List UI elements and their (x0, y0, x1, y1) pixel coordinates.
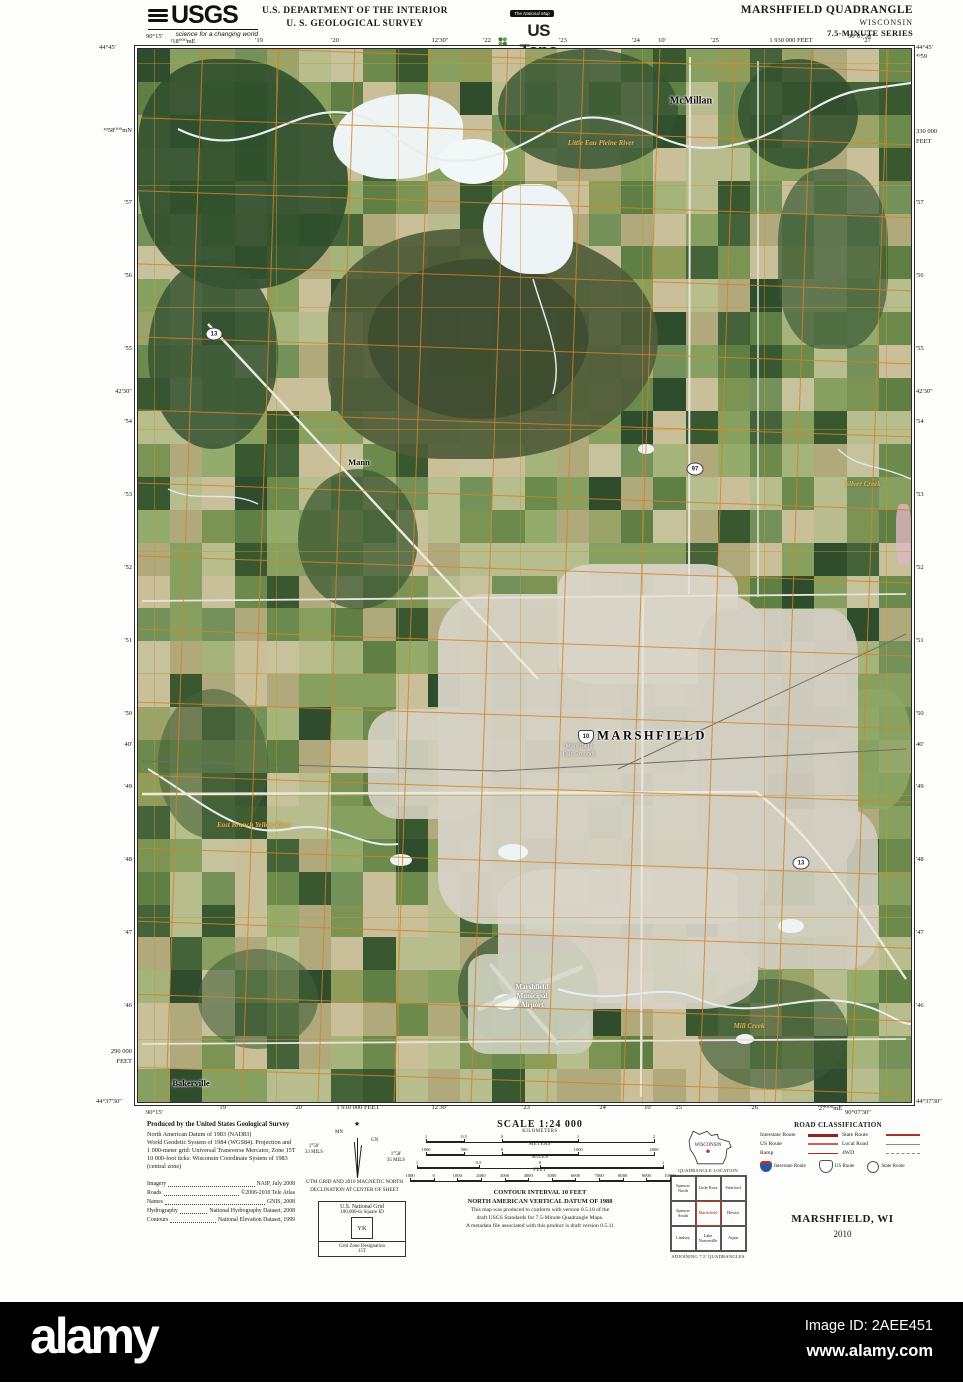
scale-bar-number: 7000 (595, 1173, 604, 1178)
roadclass-label: US Route (760, 1141, 804, 1147)
grid-tick-bottom: 10' (644, 1104, 652, 1111)
contour-line: CONTOUR INTERVAL 10 FEET (390, 1189, 690, 1198)
sheet-year: 2010 (770, 1229, 915, 1239)
adjoining-quads-grid: Spencer NorthLittle RoseStratfordSpencer… (670, 1175, 747, 1252)
interstate-shield-icon (760, 1161, 772, 1172)
source-row: HydrographyNational Hydrography Dataset,… (147, 1207, 295, 1216)
grid-tick-top: '24 (632, 37, 640, 44)
source-key: Hydrography (147, 1207, 178, 1216)
corner-tl-lon: 90°15' (146, 33, 163, 40)
roadclass-label: Local Road (842, 1141, 882, 1147)
scale-bar-number: 500 (461, 1147, 468, 1152)
adjoining-quad-cell: Hewitt (721, 1201, 746, 1226)
ustopo-leaf-icon (497, 35, 508, 48)
datum-line: 1 000-meter grid: Universal Transverse M… (147, 1147, 305, 1155)
map-label-water: East Branch Yellow River (217, 821, 291, 829)
grid-tick-left: 42'30″ (86, 388, 132, 395)
scale-bar-number: 0 (501, 1147, 503, 1152)
roadclass-line-local (886, 1144, 920, 1145)
sheet-name-block: MARSHFIELD, WI 2010 (770, 1213, 915, 1239)
true-north-star-icon: ★ (354, 1120, 360, 1129)
map-label-white-sm: Fair Grounds (563, 751, 596, 758)
grid-tick-right: 42'30″ (916, 388, 963, 395)
corner-bl-lon: 90°15' (146, 1109, 163, 1116)
corner-br-lat: 44°37'30″ (916, 1098, 942, 1105)
scale-bar-number: 1000 (573, 1147, 582, 1152)
leader-dots (180, 1207, 207, 1214)
scale-bar-tick (481, 1178, 482, 1182)
watermark-bar: alamy Image ID: 2AEE451 www.alamy.com (0, 1302, 963, 1382)
leader-dots (164, 1189, 239, 1196)
scale-bar-number: 8000 (618, 1173, 627, 1178)
roadclass-label: 4WD (842, 1150, 882, 1156)
roadclass-label: Interstate Route (760, 1132, 804, 1138)
grid-tick-left: '49 (86, 783, 132, 790)
grid-tick-left: 290 000 (86, 1048, 132, 1055)
road-shield-legend: Interstate RouteUS RouteState Route (760, 1160, 916, 1173)
standards-line: draft USGS Standards for 7.5-Minute Quad… (380, 1215, 700, 1223)
declination-diagram: ★ MN 1°50'33 MILS GN 1°58'35 MILS (295, 1124, 419, 1180)
scale-bar-number: 0 (539, 1160, 541, 1165)
scale-bar: FEET100001000200030004000500060007000800… (410, 1173, 670, 1185)
grid-tick-right: '48 (916, 856, 963, 863)
scale-bar-number: 2000 (476, 1173, 485, 1178)
grid-tick-left: 40' (86, 741, 132, 748)
usgs-waves-icon (148, 9, 168, 22)
grid-tick-left: '46 (86, 1002, 132, 1009)
scale-bar-tick (434, 1178, 435, 1182)
grid-tick-left: '55 (86, 345, 132, 352)
adjoining-quad-cell: Lake Nasonville (696, 1226, 721, 1251)
shield-legend-item: State Route (867, 1161, 904, 1173)
grid-tick-right: ⁴⁹59 (916, 53, 963, 60)
road-classification-legend: ROAD CLASSIFICATION Interstate RouteStat… (760, 1121, 916, 1173)
map-label-town-sm: Bakerville (172, 1078, 209, 1088)
roadclass-label: State Route (842, 1132, 882, 1138)
shield-legend-label: Interstate Route (774, 1164, 806, 1169)
adjoining-quad-cell: Little Rose (696, 1176, 721, 1201)
leader-dots (165, 1198, 265, 1205)
grid-tick-top: 12'30″ (432, 37, 449, 44)
roadclass-label: Ramp (760, 1150, 804, 1156)
scale-bar-tick (654, 1139, 655, 1143)
grid-tick-top: '23 (559, 37, 567, 44)
quad-state: WISCONSIN (741, 18, 913, 28)
gn-values: 1°58'35 MILS (379, 1152, 413, 1165)
map-label-white: Airport (521, 1001, 544, 1009)
adjoining-quad-cell: Lindsey (671, 1226, 696, 1251)
grid-tick-left: FEET (86, 1058, 132, 1065)
scale-bar-tick (575, 1178, 576, 1182)
map-label-water: Mill Creek (734, 1022, 765, 1030)
standards-line: This map was produced to conform with ve… (380, 1207, 700, 1215)
source-row: ContoursNational Elevation Dataset, 1999 (147, 1216, 295, 1225)
alamy-logo: alamy (30, 1311, 157, 1361)
datum-line: (central zone) (147, 1163, 305, 1171)
grid-tick-top: '25 (711, 37, 719, 44)
shield-legend-label: State Route (881, 1164, 904, 1169)
map-label-town: McMillan (670, 96, 712, 107)
datum-line: World Geodetic System of 1984 (WGS84). P… (147, 1139, 305, 1147)
usng-square-id: YK (351, 1217, 373, 1239)
scale-bar-number: 1000 (421, 1147, 430, 1152)
mn-values: 1°50'33 MILS (297, 1144, 331, 1157)
map-label-city: MARSHFIELD (597, 729, 707, 744)
shield-legend-label: US Route (835, 1164, 855, 1169)
adjoining-quad-cell: Spencer South (671, 1201, 696, 1226)
quad-title: MARSHFIELD QUADRANGLE (741, 3, 913, 18)
scale-bar-number: 0 (501, 1134, 503, 1139)
scale-bar-number: 2000 (649, 1147, 658, 1152)
grid-tick-bottom: '27⁰⁰⁰mE (818, 1104, 843, 1112)
quadrangle-location-block: WISCONSIN QUADRANGLE LOCATION Spencer No… (668, 1126, 748, 1259)
scale-bar-segment (646, 1180, 670, 1182)
map-label-town-sm: Mann (348, 457, 370, 467)
scale-bar-number: 2 (653, 1134, 655, 1139)
adjoining-quad-cell: Marshfield (696, 1201, 721, 1226)
grid-tick-bottom: '25 (674, 1104, 682, 1111)
grid-tick-left: '47 (86, 929, 132, 936)
grid-tick-left: '54 (86, 418, 132, 425)
map-label-white: Marshfield (515, 983, 548, 991)
wisconsin-label: WISCONSIN (695, 1143, 722, 1148)
scale-bar-segment (552, 1180, 576, 1182)
grid-tick-bottom: 1 910 000 FEET (336, 1104, 379, 1111)
adjoining-quad-cell: Spencer North (671, 1176, 696, 1201)
grid-tick-right: '46 (916, 1002, 963, 1009)
grid-tick-left: '51 (86, 637, 132, 644)
usng-gzd-value: 15T (319, 1249, 405, 1254)
grid-tick-right: '49 (916, 783, 963, 790)
grid-tick-top: ¹18⁰⁰⁰mE (170, 37, 195, 45)
usgs-topo-sheet: USGS science for a changing world U.S. D… (0, 0, 963, 1390)
roadclass-line-state (886, 1134, 920, 1136)
grid-tick-right: '56 (916, 272, 963, 279)
grid-tick-left: '57 (86, 199, 132, 206)
datum-lines: North American Datum of 1983 (NAD83)Worl… (147, 1131, 305, 1171)
department-heading: U.S. DEPARTMENT OF THE INTERIOR U. S. GE… (225, 5, 485, 31)
map-label-water: Little Eau Pleine River (568, 139, 634, 147)
datum-line: North American Datum of 1983 (NAD83) (147, 1131, 305, 1139)
grid-tick-bottom: 12'30″ (432, 1104, 449, 1111)
source-key: Roads (147, 1189, 162, 1198)
scale-bar-number: 5000 (547, 1173, 556, 1178)
scale-bar-unit: KILOMETERS (426, 1129, 654, 1134)
grid-tick-left: '56 (86, 272, 132, 279)
leader-dots (170, 1216, 216, 1223)
scale-bar-number: 1 (416, 1160, 418, 1165)
grid-tick-right: '53 (916, 491, 963, 498)
grid-tick-bottom: '23 (522, 1104, 530, 1111)
grid-tick-bottom: '24 (598, 1104, 606, 1111)
source-value: National Elevation Dataset, 1999 (218, 1216, 295, 1225)
contour-line: NORTH AMERICAN VERTICAL DATUM OF 1988 (390, 1198, 690, 1207)
scale-bar-segment (599, 1180, 623, 1182)
scale-bar-number: 9000 (642, 1173, 651, 1178)
grid-tick-top: '20 (331, 37, 339, 44)
map-label-water: Silver Creek (845, 480, 881, 488)
route-shield-state: 97 (687, 463, 704, 476)
us-shield-icon (819, 1160, 833, 1173)
shield-legend-item: US Route (819, 1160, 855, 1173)
grid-tick-right: FEET (916, 138, 963, 145)
scale-bar-tick (528, 1178, 529, 1182)
image-id-text: Image ID: 2AEE451 (805, 1318, 933, 1334)
scale-bar-number: 1000 (453, 1173, 462, 1178)
wisconsin-outline-icon: WISCONSIN (682, 1126, 734, 1168)
grid-tick-left: '53 (86, 491, 132, 498)
adjoining-quads-caption: ADJOINING 7.5' QUADRANGLES (668, 1254, 748, 1259)
national-map-label: The National Map (510, 10, 554, 17)
scale-bar-number: 1000 (405, 1173, 414, 1178)
mn-label: MN (335, 1130, 343, 1136)
scale-bar-number: 0 (432, 1173, 434, 1178)
map-label-white: Municipal (517, 992, 548, 1000)
produced-by-title: Produced by the United States Geological… (147, 1121, 305, 1130)
roadclass-line-us (808, 1143, 838, 1145)
scale-bar-baseline (410, 1181, 670, 1182)
grid-tick-top: 1 930 000 FEET (769, 37, 812, 44)
source-value: GNIS, 2008 (267, 1198, 295, 1207)
scale-bar-number: 6000 (571, 1173, 580, 1178)
grid-tick-right: '54 (916, 418, 963, 425)
source-key: Names (147, 1198, 163, 1207)
grid-tick-right: 330 000 (916, 128, 963, 135)
leader-dots (168, 1180, 254, 1187)
corner-tr-lat: 44°45' (916, 44, 933, 51)
scale-bar-number: 1 (662, 1160, 664, 1165)
scale-bar-number: 10000 (664, 1173, 675, 1178)
grid-tick-top: '27 (863, 37, 871, 44)
shield-legend-item: Interstate Route (760, 1161, 806, 1172)
state-shield-icon (867, 1161, 879, 1173)
road-classification-title: ROAD CLASSIFICATION (760, 1121, 916, 1129)
corner-tl-lat: 44°45' (99, 44, 116, 51)
contour-note: CONTOUR INTERVAL 10 FEETNORTH AMERICAN V… (390, 1189, 690, 1207)
route-shield-state: 13 (793, 857, 810, 870)
gn-label: GN (371, 1138, 378, 1144)
scale-bar-number: 0.5 (476, 1160, 482, 1165)
quad-location-dot (706, 1150, 709, 1153)
grid-tick-left: '52 (86, 564, 132, 571)
standards-note: This map was produced to conform with ve… (380, 1207, 700, 1230)
grid-tick-right: 40' (916, 741, 963, 748)
standards-line: A metadata file associated with this pro… (380, 1223, 700, 1231)
sheet-name: MARSHFIELD, WI (770, 1213, 915, 1225)
source-key: Imagery (147, 1180, 166, 1189)
grid-tick-right: '47 (916, 929, 963, 936)
adjoining-quad-cell: Stratford (721, 1176, 746, 1201)
source-value: National Hydrography Dataset, 2008 (209, 1207, 295, 1216)
scale-bar-number: 1 (425, 1134, 427, 1139)
quad-location-caption: QUADRANGLE LOCATION (668, 1168, 748, 1173)
roadclass-line-interstate (808, 1134, 838, 1137)
quad-series: 7.5-MINUTE SERIES (741, 28, 913, 39)
grid-tick-right: '55 (916, 345, 963, 352)
road-classification-rows: Interstate RouteState RouteUS RouteLocal… (760, 1132, 916, 1156)
grid-tick-left: ⁴⁹58⁰⁰⁰mN (86, 126, 132, 134)
scale-bar-segment (505, 1180, 529, 1182)
grid-tick-top: '22 (483, 37, 491, 44)
map-area: McMillanMannMARSHFIELDBakervilleMarshfie… (137, 48, 912, 1103)
grid-tick-bottom: '26 (750, 1104, 758, 1111)
scale-bar-number: 4000 (524, 1173, 533, 1178)
map-labels: McMillanMannMARSHFIELDBakervilleMarshfie… (138, 49, 911, 1102)
grid-tick-top: '19 (255, 37, 263, 44)
scale-bar-number: 0.5 (461, 1134, 467, 1139)
scale-bar-segment (457, 1180, 481, 1182)
roadclass-line-ramp (808, 1153, 838, 1154)
grid-tick-left: '50 (86, 710, 132, 717)
scale-bar-number: 1 (577, 1134, 579, 1139)
scale-bar-number: 3000 (500, 1173, 509, 1178)
corner-bl-lat: 44°37'30″ (96, 1098, 122, 1105)
route-shield-state: 13 (206, 328, 223, 341)
dept-line2: U. S. GEOLOGICAL SURVEY (225, 18, 485, 31)
grid-tick-right: '51 (916, 637, 963, 644)
scale-bar-segment (410, 1180, 434, 1182)
scale-bar-unit: FEET (410, 1168, 670, 1173)
quadrangle-title-block: MARSHFIELD QUADRANGLE WISCONSIN 7.5-MINU… (741, 3, 913, 39)
grid-tick-bottom: '20 (294, 1104, 302, 1111)
datum-line: 10 000-foot ticks: Wisconsin Coordinate … (147, 1155, 305, 1163)
grid-tick-right: '52 (916, 564, 963, 571)
source-key: Contours (147, 1216, 168, 1225)
roadclass-line-fourwd (886, 1153, 920, 1154)
alamy-url[interactable]: www.alamy.com (805, 1342, 933, 1361)
grid-tick-left: '48 (86, 856, 132, 863)
scale-bar-tick (623, 1178, 624, 1182)
scale-bar-tick (670, 1178, 671, 1182)
dept-line1: U.S. DEPARTMENT OF THE INTERIOR (225, 5, 485, 18)
corner-br-lon: 90°07'30″ (845, 1109, 871, 1116)
grid-tick-right: '57 (916, 199, 963, 206)
grid-tick-right: '50 (916, 710, 963, 717)
source-row: NamesGNIS, 2008 (147, 1198, 295, 1207)
grid-tick-top: 10' (658, 37, 666, 44)
produced-by-block: Produced by the United States Geological… (147, 1121, 305, 1171)
grid-tick-bottom: '19 (218, 1104, 226, 1111)
adjoining-quad-cell: Arpin (721, 1226, 746, 1251)
